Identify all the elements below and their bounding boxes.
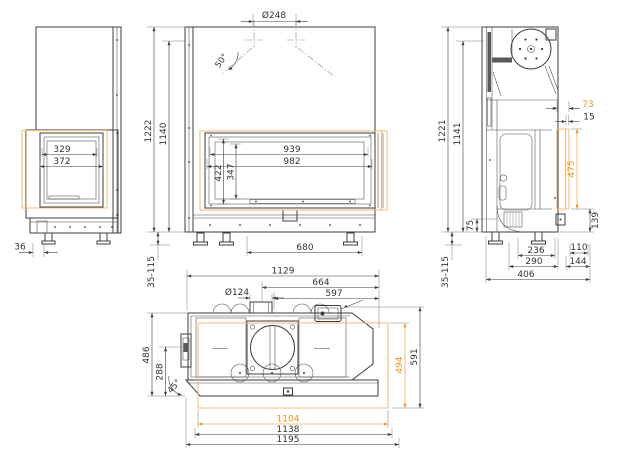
dim-glass-height-inner: 347 [227,163,237,180]
side-view-left: 329 372 36 [14,27,121,257]
dim-flue-center-offset: 597 [325,289,342,299]
dim-corner-angle: 45° [166,378,184,396]
dim-flue-diameter: Ø248 [262,10,287,21]
side-view-right: 1221 1141 73 15 475 139 75 [438,27,601,288]
dim-frame-width: 1195 [277,435,300,445]
dim-intake-diameter: Ø124 [225,287,250,298]
dim-plinth-height: 139 [591,212,601,229]
dim-feet-spacing-depth: 236 [527,246,544,256]
dim-side-offset: 36 [14,243,26,253]
dim-depth-mid: 290 [525,257,542,267]
dim-height-total: 1221 [438,120,448,143]
side-view-right-outline [482,27,565,244]
dim-frame-width-inner: 1138 [277,425,300,435]
dim-depth-body: 486 [142,346,152,363]
dim-feet-spacing: 680 [296,243,313,253]
dim-rear-depth: 144 [569,257,586,267]
fireplace-dimension-drawing: 329 372 36 [0,0,624,460]
front-view-outline [185,20,383,245]
plan-view-outline [181,300,378,396]
dim-glass-width: 1104 [277,415,300,425]
dim-glass-height-outer: 422 [214,164,224,181]
front-view: Ø248 50° 1222 1140 939 982 422 347 [144,10,387,288]
dim-frame-gap: 15 [583,113,594,123]
dim-duct-height: 75 [466,220,476,231]
dim-rear-offset: 110 [570,243,587,253]
side-view-left-dimensions: 329 372 36 [14,145,103,257]
dim-glass-height: 475 [567,160,577,177]
dim-hood-angle: 50° [214,52,231,70]
dim-depth-inner: 288 [156,363,166,380]
dim-glass-width-outer: 372 [53,157,70,167]
plan-view: 1129 664 597 Ø124 486 288 45° 494 591 [142,267,424,449]
dim-glass-depth: 494 [395,356,405,373]
dim-feet-adjust-range: 35-115 [147,256,157,288]
dim-depth-total: 406 [517,270,534,280]
dim-height-upper-edge: 1140 [159,122,169,145]
dim-width-mid: 664 [312,278,329,288]
side-view-right-dimensions: 1221 1141 73 15 475 139 75 [438,27,601,288]
dim-width-rear: 1129 [272,267,295,277]
dim-glass-width-inner: 939 [283,145,300,155]
dim-depth-total: 591 [410,348,420,365]
side-view-left-glass-highlight [22,131,107,209]
technical-drawing-page: 329 372 36 [0,0,624,460]
dim-feet-adjust-range: 35-115 [441,256,451,288]
dim-height-total: 1222 [144,120,154,143]
dim-height-upper-edge: 1141 [453,123,463,146]
front-view-dimensions: Ø248 50° 1222 1140 939 982 422 347 [144,10,372,288]
plan-view-dimensions: 1129 664 597 Ø124 486 288 45° 494 591 [142,267,424,449]
dim-glass-offset-top: 73 [582,100,593,110]
dim-glass-width-outer: 982 [283,157,300,167]
dim-glass-width-inner: 329 [53,145,70,155]
